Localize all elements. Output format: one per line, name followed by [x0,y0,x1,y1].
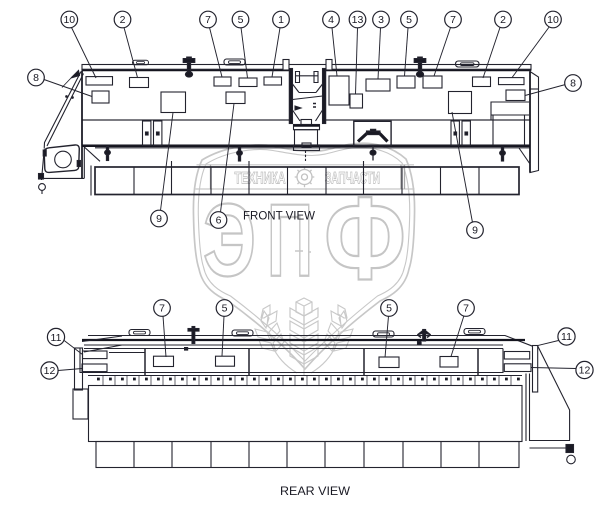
svg-text:10: 10 [63,14,75,26]
svg-text:2: 2 [500,14,506,26]
svg-text:7: 7 [205,14,211,26]
svg-text:9: 9 [156,213,162,225]
svg-text:3: 3 [378,14,384,26]
svg-text:5: 5 [238,14,244,26]
svg-text:П: П [267,183,313,298]
svg-text:2: 2 [120,14,126,26]
svg-text:5: 5 [386,303,392,315]
svg-text:4: 4 [328,14,334,26]
svg-text:Э: Э [203,183,256,298]
svg-text:5: 5 [406,14,412,26]
svg-text:8: 8 [33,72,39,84]
svg-text:11: 11 [51,332,62,344]
svg-text:1: 1 [278,14,284,26]
svg-text:8: 8 [570,78,576,90]
svg-text:7: 7 [463,303,469,315]
svg-text:9: 9 [472,225,478,237]
svg-text:10: 10 [547,14,559,26]
svg-text:13: 13 [352,14,364,26]
svg-text:12: 12 [44,365,56,377]
svg-text:12: 12 [579,365,591,377]
svg-text:FRONT VIEW: FRONT VIEW [243,209,316,223]
svg-text:7: 7 [450,14,456,26]
svg-text:6: 6 [216,215,222,227]
svg-text:11: 11 [561,331,572,343]
svg-text:Ф: Ф [324,173,406,305]
svg-text:REAR VIEW: REAR VIEW [280,484,351,498]
svg-text:5: 5 [222,303,228,315]
svg-text:7: 7 [159,303,165,315]
